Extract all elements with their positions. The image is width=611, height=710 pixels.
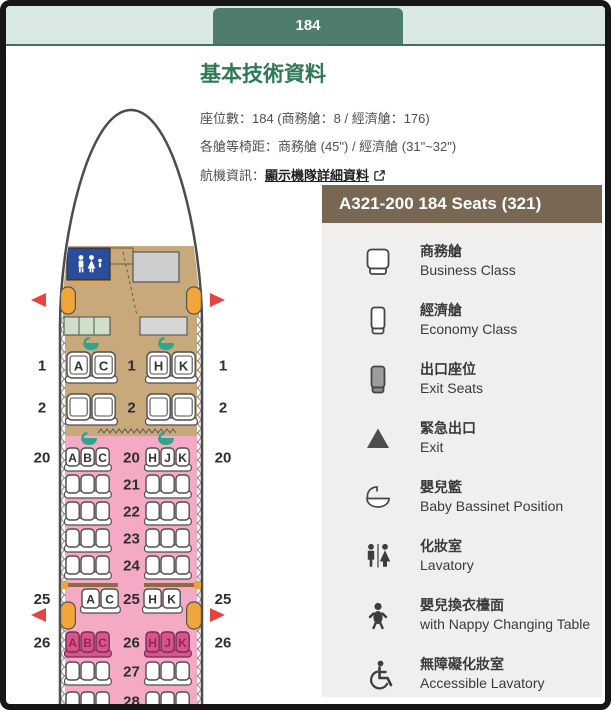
- seat: [96, 529, 109, 547]
- nappy-icon: [362, 599, 394, 631]
- bulkhead-bar-left: [64, 583, 118, 587]
- seat: [161, 502, 174, 520]
- legend-list: 商務艙Business Class經濟艙Economy Class出口座位Exi…: [322, 223, 602, 697]
- page-title: 基本技術資料: [200, 58, 326, 88]
- exit-door-rear-right: [187, 602, 202, 629]
- business-seat-icon: [362, 245, 394, 277]
- row-number-aisle: 22: [123, 504, 140, 521]
- seat: [96, 556, 109, 574]
- seat: [81, 529, 94, 547]
- legend-label-zh: 化妝室: [420, 537, 474, 556]
- front-closet-left: [64, 317, 110, 335]
- legend-item-economy-seat: 經濟艙Economy Class: [322, 290, 602, 349]
- row-number-right: 2: [219, 400, 227, 417]
- legend-header: A321-200 184 Seats (321): [322, 185, 602, 223]
- legend-label-en: Baby Bassinet Position: [420, 498, 563, 514]
- legend-label-zh: 出口座位: [420, 360, 483, 379]
- seat-letter: J: [164, 451, 171, 465]
- legend-label-zh: 嬰兒換衣檯面: [420, 596, 590, 615]
- seat-count-tab[interactable]: 184: [213, 8, 403, 44]
- external-link-icon: [373, 169, 386, 182]
- economy-seat-icon: [362, 304, 394, 336]
- row-number-right: 26: [215, 635, 232, 652]
- exit-arrow-icon: [362, 422, 394, 454]
- legend-panel: A321-200 184 Seats (321) 商務艙Business Cla…: [322, 185, 602, 697]
- row-number-aisle: 1: [127, 358, 135, 375]
- seat: [176, 502, 189, 520]
- row-number-aisle: 20: [123, 450, 140, 467]
- legend-item-exit-arrow: 緊急出口Exit: [322, 408, 602, 467]
- galley-counter: [110, 248, 133, 264]
- seat: [96, 475, 109, 493]
- exit-arrow-icon: [210, 608, 225, 622]
- legend-label-zh: 無障礙化妝室: [420, 655, 545, 674]
- legend-label-en: Exit: [420, 439, 443, 455]
- seat-letter: C: [99, 359, 109, 374]
- legend-label-zh: 商務艙: [420, 242, 516, 261]
- exit-arrow-icon: [31, 293, 46, 307]
- left-wall-windows: [62, 316, 66, 703]
- exit-arrow-icon: [31, 608, 46, 622]
- row-number-aisle: 21: [123, 477, 140, 494]
- bassinet-icon: [362, 481, 394, 513]
- exit-door-front-right: [187, 287, 202, 314]
- legend-label-en: Exit Seats: [420, 380, 483, 396]
- seat-letter: C: [105, 593, 114, 607]
- seat: [146, 662, 159, 680]
- accessible-lavatory-icon: [362, 658, 394, 690]
- row-number-left: 20: [34, 450, 51, 467]
- row-number-left: 25: [34, 591, 51, 608]
- seat: [161, 475, 174, 493]
- row-number-aisle: 28: [123, 694, 140, 710]
- seat-letter: H: [154, 359, 163, 374]
- legend-item-lavatory: 化妝室Lavatory: [322, 526, 602, 585]
- seat: [96, 502, 109, 520]
- legend-label-en: with Nappy Changing Table: [420, 616, 590, 632]
- seat: [146, 502, 159, 520]
- seat: [66, 502, 79, 520]
- seat: [66, 662, 79, 680]
- top-tab-bar: 184: [6, 6, 605, 46]
- seat-letter: A: [74, 359, 84, 374]
- seat: [146, 556, 159, 574]
- seat-letter: A: [86, 593, 95, 607]
- seat-letter: K: [167, 593, 176, 607]
- lavatory-door-strip: [70, 281, 108, 285]
- row-number-aisle: 2: [127, 400, 135, 417]
- seat: [96, 692, 109, 710]
- seat: [161, 529, 174, 547]
- seat: [146, 475, 159, 493]
- legend-label-zh: 嬰兒籃: [420, 478, 563, 497]
- legend-item-business-seat: 商務艙Business Class: [322, 231, 602, 290]
- seat-letter: K: [179, 359, 189, 374]
- seat: [161, 662, 174, 680]
- seat-letter: H: [148, 593, 157, 607]
- bulkhead-bar-right: [144, 583, 198, 587]
- exit-seat-icon: [362, 363, 394, 395]
- seat: [161, 692, 174, 710]
- row-number-aisle: 23: [123, 531, 140, 548]
- legend-label-en: Economy Class: [420, 321, 517, 337]
- row-number-aisle: 24: [123, 558, 140, 575]
- seat-letter: A: [68, 636, 77, 650]
- lavatory-icon: [362, 540, 394, 572]
- seat: [81, 502, 94, 520]
- legend-label-en: Lavatory: [420, 557, 474, 573]
- seat-map: ACHK111222ABCHJK20202021222324ACHK252525…: [6, 100, 326, 710]
- seat: [96, 662, 109, 680]
- seat-row-28: 28: [65, 692, 192, 710]
- legend-label-zh: 緊急出口: [420, 419, 476, 438]
- row-number-right: 20: [215, 450, 232, 467]
- seat: [81, 692, 94, 710]
- seat: [146, 692, 159, 710]
- row-number-aisle: 27: [123, 664, 140, 681]
- seat-letter: C: [98, 636, 107, 650]
- legend-item-nappy: 嬰兒換衣檯面with Nappy Changing Table: [322, 585, 602, 644]
- seat: [81, 475, 94, 493]
- seat-letter: B: [83, 636, 92, 650]
- seat: [176, 692, 189, 710]
- row-number-left: 26: [34, 635, 51, 652]
- seat: [176, 662, 189, 680]
- seat-letter: J: [164, 636, 171, 650]
- seat-letter: K: [178, 451, 187, 465]
- seat: [66, 529, 79, 547]
- page: 184 基本技術資料 座位數：184 (商務艙：8 / 經濟艙：176) 各艙等…: [0, 0, 611, 710]
- row-number-right: 25: [215, 591, 232, 608]
- seat-letter: H: [148, 451, 157, 465]
- seat-letter: K: [178, 636, 187, 650]
- front-galley: [133, 252, 179, 282]
- right-wall-windows: [197, 316, 201, 703]
- row-number-aisle: 26: [123, 635, 140, 652]
- legend-item-accessible-lavatory: 無障礙化妝室Accessible Lavatory: [322, 644, 602, 703]
- row-number-aisle: 25: [123, 591, 140, 608]
- exit-door-front-left: [61, 287, 76, 314]
- legend-item-exit-seat: 出口座位Exit Seats: [322, 349, 602, 408]
- seat: [176, 475, 189, 493]
- seat-letter: B: [83, 451, 92, 465]
- legend-label-zh: 經濟艙: [420, 301, 517, 320]
- seat: [176, 529, 189, 547]
- seat: [146, 529, 159, 547]
- seat-letter: H: [148, 636, 157, 650]
- seat: [66, 475, 79, 493]
- exit-arrow-icon: [210, 293, 225, 307]
- seat: [81, 662, 94, 680]
- seat-count-tab-label: 184: [295, 17, 320, 34]
- front-lavatory: [67, 248, 110, 280]
- seat: [66, 556, 79, 574]
- legend-item-bassinet: 嬰兒籃Baby Bassinet Position: [322, 467, 602, 526]
- legend-label-en: Accessible Lavatory: [420, 675, 545, 691]
- exit-door-rear-left: [61, 602, 76, 629]
- seat: [66, 692, 79, 710]
- seat-letter: A: [68, 451, 77, 465]
- seat-letter: C: [98, 451, 107, 465]
- row-number-left: 2: [38, 400, 46, 417]
- legend-label-en: Business Class: [420, 262, 516, 278]
- row-number-left: 1: [38, 358, 46, 375]
- seat: [176, 556, 189, 574]
- seat: [161, 556, 174, 574]
- row-number-right: 1: [219, 358, 227, 375]
- seat: [81, 556, 94, 574]
- front-closet-right: [140, 317, 187, 335]
